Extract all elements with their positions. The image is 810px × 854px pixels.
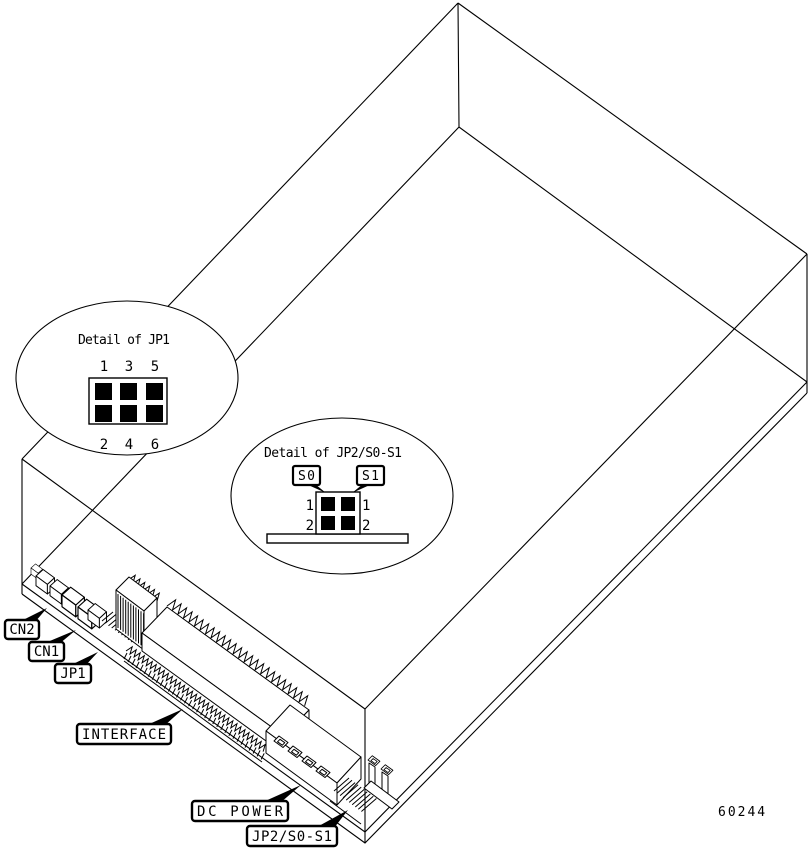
balloon-jp1-title: Detail of JP1	[78, 333, 170, 348]
detail-balloon-jp2: Detail of JP2/S0-S1 S0 S1 1 2 1 2	[231, 418, 453, 574]
callout-interface: INTERFACE	[77, 709, 183, 744]
jp1-pin-1: 1	[100, 359, 108, 375]
jp1-pin-6: 6	[151, 437, 159, 453]
jp2-right-pin-1: 1	[362, 498, 370, 514]
figure-number: 60244	[718, 805, 767, 820]
callout-jp1-label: JP1	[60, 666, 85, 682]
hardware-diagram-page: Detail of JP1 1 3 5 2 4 6 Detail of JP2/…	[0, 0, 810, 854]
balloon-jp2-title: Detail of JP2/S0-S1	[264, 446, 402, 461]
callout-cn1-label: CN1	[34, 644, 59, 660]
jp1-pin-5: 5	[151, 359, 159, 375]
hardware-diagram-svg: Detail of JP1 1 3 5 2 4 6 Detail of JP2/…	[0, 0, 810, 854]
corner-bracket	[364, 756, 399, 809]
callout-jp2-label: JP2/S0-S1	[252, 829, 332, 845]
tag-s1-label: S1	[362, 469, 379, 484]
jp2-right-pin-2: 2	[362, 518, 370, 534]
jp1-pin-4: 4	[125, 437, 133, 453]
detail-balloon-jp1: Detail of JP1 1 3 5 2 4 6	[16, 301, 238, 455]
callout-interface-label: INTERFACE	[82, 727, 166, 743]
callout-cn2: CN2	[5, 608, 47, 639]
jp2-board-bar	[267, 534, 408, 543]
jp2-left-pin-1: 1	[306, 498, 314, 514]
jp2-left-pin-2: 2	[306, 518, 314, 534]
jp1-pin-3: 3	[125, 359, 133, 375]
callout-cn2-label: CN2	[9, 622, 34, 638]
tag-s0-label: S0	[298, 469, 315, 484]
jp1-pin-2: 2	[100, 437, 108, 453]
callout-dc-power: DC POWER	[192, 785, 301, 821]
